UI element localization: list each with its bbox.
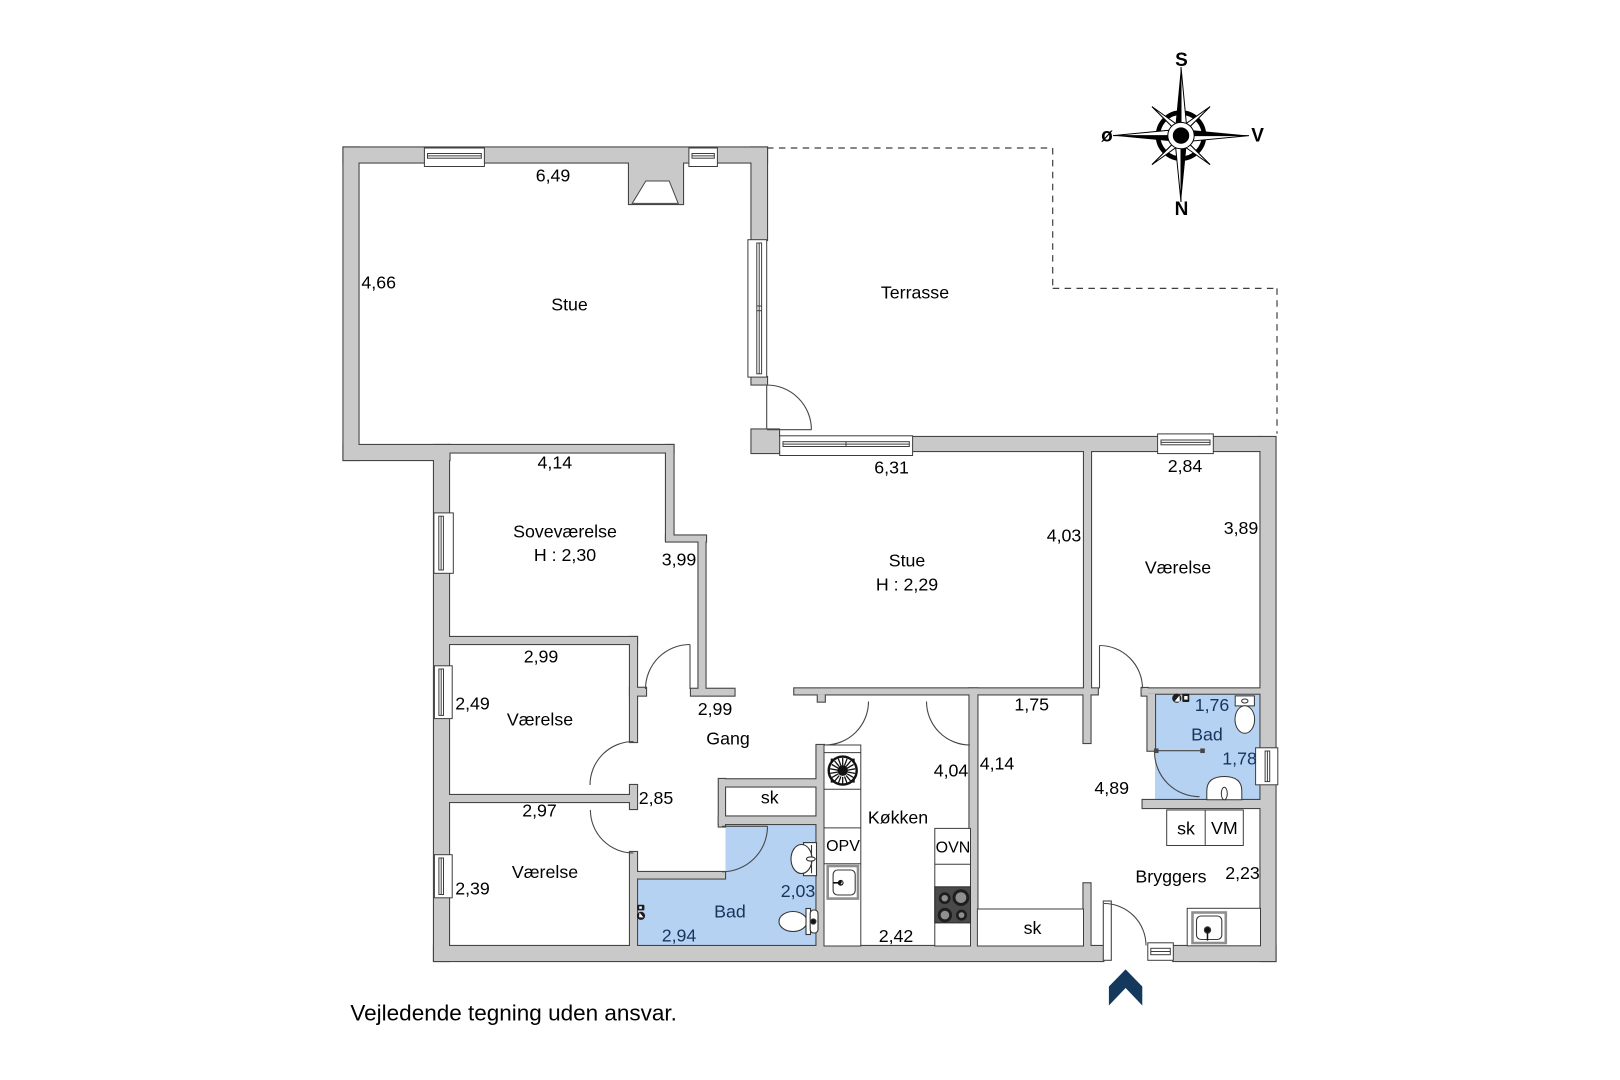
svg-text:4,14: 4,14 (537, 453, 572, 473)
svg-text:Bad: Bad (714, 902, 746, 922)
svg-text:2,03: 2,03 (781, 881, 816, 901)
svg-text:Stue: Stue (551, 295, 588, 315)
svg-text:sk: sk (1177, 819, 1195, 839)
svg-text:Stue: Stue (889, 551, 926, 571)
svg-text:ø: ø (1101, 126, 1113, 147)
svg-text:V: V (1251, 126, 1264, 147)
svg-text:1,76: 1,76 (1195, 695, 1230, 715)
svg-text:Værelse: Værelse (507, 710, 573, 730)
svg-text:Værelse: Værelse (1145, 558, 1211, 578)
svg-text:6,49: 6,49 (536, 166, 571, 186)
svg-text:2,84: 2,84 (1168, 456, 1203, 476)
svg-text:4,14: 4,14 (980, 754, 1015, 774)
svg-text:4,66: 4,66 (361, 273, 396, 293)
svg-text:2,49: 2,49 (455, 694, 490, 714)
svg-text:VM: VM (1211, 818, 1238, 838)
svg-text:2,99: 2,99 (698, 699, 733, 719)
svg-text:Soveværelse: Soveværelse (513, 522, 617, 542)
svg-text:H : 2,29: H : 2,29 (876, 575, 938, 595)
svg-text:sk: sk (761, 788, 779, 808)
svg-text:2,97: 2,97 (522, 801, 557, 821)
svg-text:3,99: 3,99 (662, 550, 697, 570)
svg-text:2,23: 2,23 (1225, 863, 1260, 883)
svg-text:4,03: 4,03 (1047, 526, 1082, 546)
svg-text:OVN: OVN (936, 840, 971, 857)
svg-text:sk: sk (1024, 918, 1042, 938)
svg-text:4,04: 4,04 (934, 761, 969, 781)
svg-text:Køkken: Køkken (868, 808, 928, 828)
svg-text:3,89: 3,89 (1224, 518, 1259, 538)
svg-text:N: N (1175, 199, 1189, 220)
svg-text:Bad: Bad (1191, 725, 1223, 745)
svg-text:6,31: 6,31 (874, 458, 909, 478)
svg-text:1,78: 1,78 (1222, 749, 1257, 769)
svg-text:2,94: 2,94 (662, 926, 697, 946)
svg-text:Vejledende tegning uden ansvar: Vejledende tegning uden ansvar. (350, 1000, 677, 1025)
svg-text:OPV: OPV (826, 838, 860, 855)
svg-text:4,89: 4,89 (1094, 778, 1129, 798)
svg-text:Bryggers: Bryggers (1135, 867, 1206, 887)
svg-text:Terrasse: Terrasse (881, 283, 949, 303)
svg-text:2,99: 2,99 (524, 647, 559, 667)
svg-text:H : 2,30: H : 2,30 (534, 545, 596, 565)
svg-text:2,85: 2,85 (639, 788, 674, 808)
svg-text:Gang: Gang (706, 729, 750, 749)
svg-text:S: S (1175, 50, 1188, 71)
svg-text:2,39: 2,39 (455, 879, 490, 899)
svg-text:1,75: 1,75 (1014, 695, 1049, 715)
svg-text:Værelse: Værelse (512, 862, 578, 882)
svg-text:2,42: 2,42 (879, 926, 914, 946)
